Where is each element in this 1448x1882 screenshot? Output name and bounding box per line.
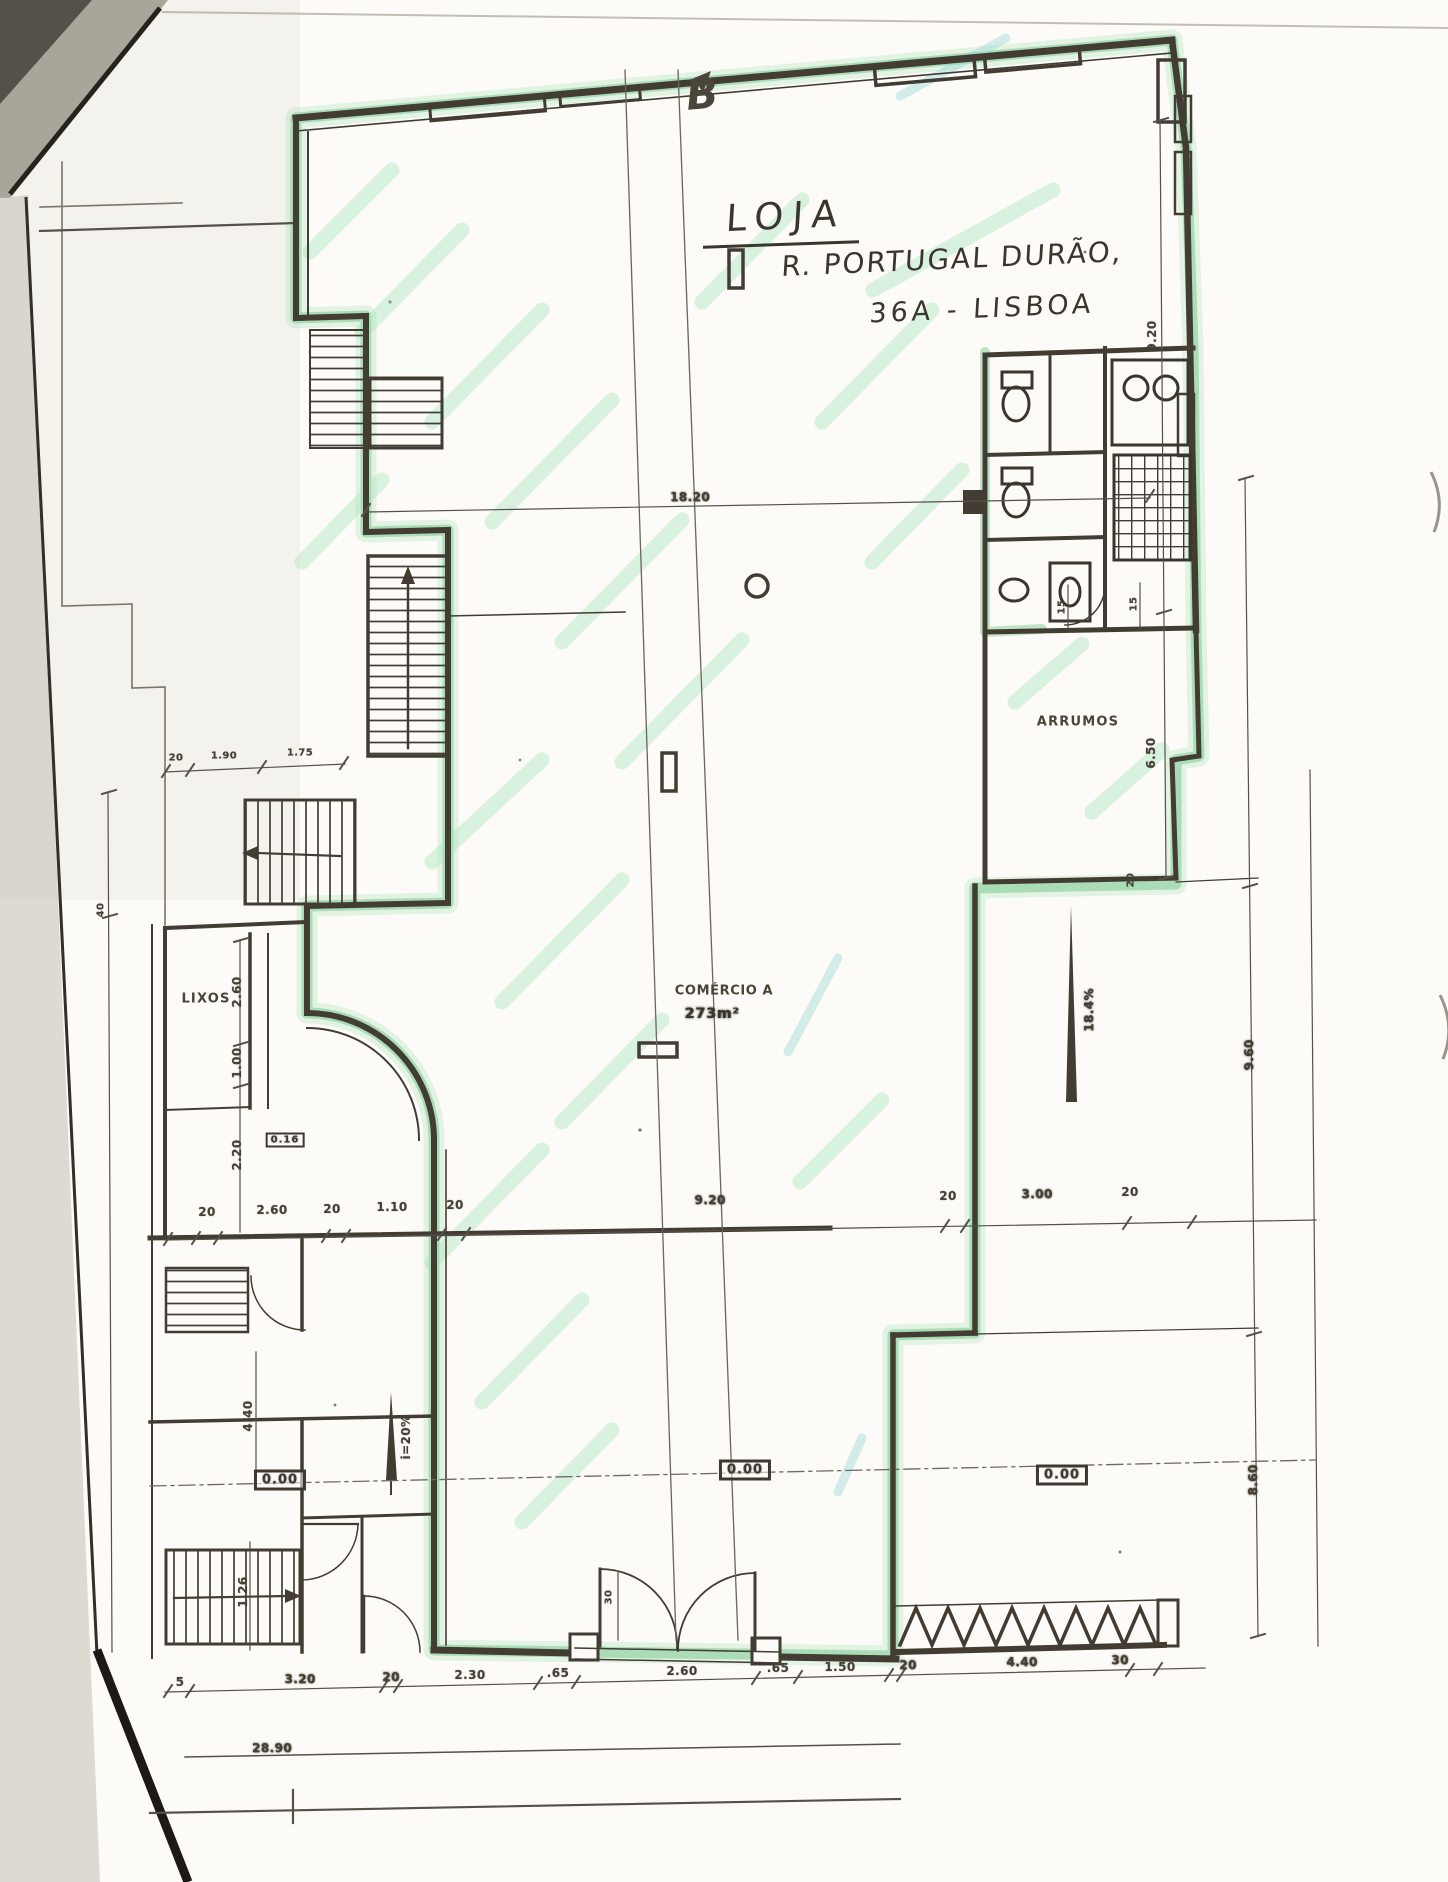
dim-label: 6.50 — [1144, 737, 1158, 768]
dim-label: 20 — [1126, 873, 1137, 888]
dim-label: 20 — [1121, 1185, 1139, 1199]
dim-label: 8.60 — [1246, 1464, 1260, 1495]
room-label-storage: ARRUMOS — [1037, 715, 1119, 730]
dim-label: 2.30 — [454, 1668, 485, 1682]
dim-label: 9.20 — [1145, 320, 1159, 351]
section-marker-b: B — [684, 68, 720, 120]
dim-label: 15 — [1129, 597, 1140, 612]
room-label-commerce: COMÉRCIO A — [675, 984, 773, 999]
dim-label: 2.60 — [666, 1664, 697, 1678]
dim-label-total: 28.90 — [252, 1741, 292, 1755]
dim-label: .65 — [767, 1661, 789, 1675]
level-box-left: 0.00 — [254, 1470, 306, 1491]
room-area-commerce: 273m² — [685, 1006, 740, 1022]
dim-label: 1.00 — [230, 1047, 244, 1078]
scanned-floor-plan: B LOJA R. PORTUGAL DURÃO, 36A - LISBOA A… — [0, 0, 1448, 1882]
dim-label: 3.20 — [284, 1672, 315, 1686]
dim-label: 20 — [446, 1198, 464, 1212]
dim-label: 1.75 — [287, 748, 313, 759]
dim-label: 20 — [939, 1189, 957, 1203]
slope-label-right-ramp: 18.4% — [1082, 988, 1096, 1032]
dim-label: 30 — [1111, 1653, 1129, 1667]
level-box-landing: 0.16 — [266, 1133, 305, 1148]
dim-label: 1.10 — [376, 1200, 407, 1214]
dim-label: 1.90 — [211, 751, 237, 762]
dim-label: 2.60 — [256, 1203, 287, 1217]
dim-label: 2.60 — [230, 976, 244, 1007]
dim-label: 5 — [176, 1675, 185, 1689]
dim-label: 4.40 — [1006, 1655, 1037, 1669]
handwritten-title: LOJA — [725, 192, 848, 240]
labels-layer: B LOJA R. PORTUGAL DURÃO, 36A - LISBOA A… — [0, 0, 1448, 1882]
dim-label: 9.20 — [694, 1193, 725, 1207]
dim-label: 20 — [198, 1205, 216, 1219]
dim-label: 3.00 — [1021, 1187, 1052, 1201]
dim-label: 20 — [169, 753, 184, 764]
level-box-right: 0.00 — [1036, 1465, 1088, 1486]
dim-label: 2.20 — [230, 1139, 244, 1170]
dim-label: 1.50 — [824, 1660, 855, 1674]
dim-label: 4.40 — [241, 1400, 255, 1431]
dim-label: 30 — [604, 1590, 615, 1605]
dim-label: 40 — [96, 903, 107, 918]
dim-label: 20 — [323, 1202, 341, 1216]
dim-label: 18.20 — [670, 490, 710, 504]
dim-label: 1.26 — [236, 1576, 250, 1607]
dim-label: 20 — [899, 1658, 917, 1672]
room-label-trash: LIXOS — [181, 992, 230, 1007]
dim-label: 20 — [382, 1670, 400, 1684]
dim-label: 9.60 — [1242, 1039, 1256, 1070]
slope-label-left-ramp: i=20% — [399, 1415, 413, 1460]
dim-label: .65 — [547, 1666, 569, 1680]
dim-label: 15 — [1057, 600, 1068, 615]
handwritten-address-line2: 36A - LISBOA — [869, 289, 1096, 330]
level-box-center: 0.00 — [719, 1460, 771, 1481]
